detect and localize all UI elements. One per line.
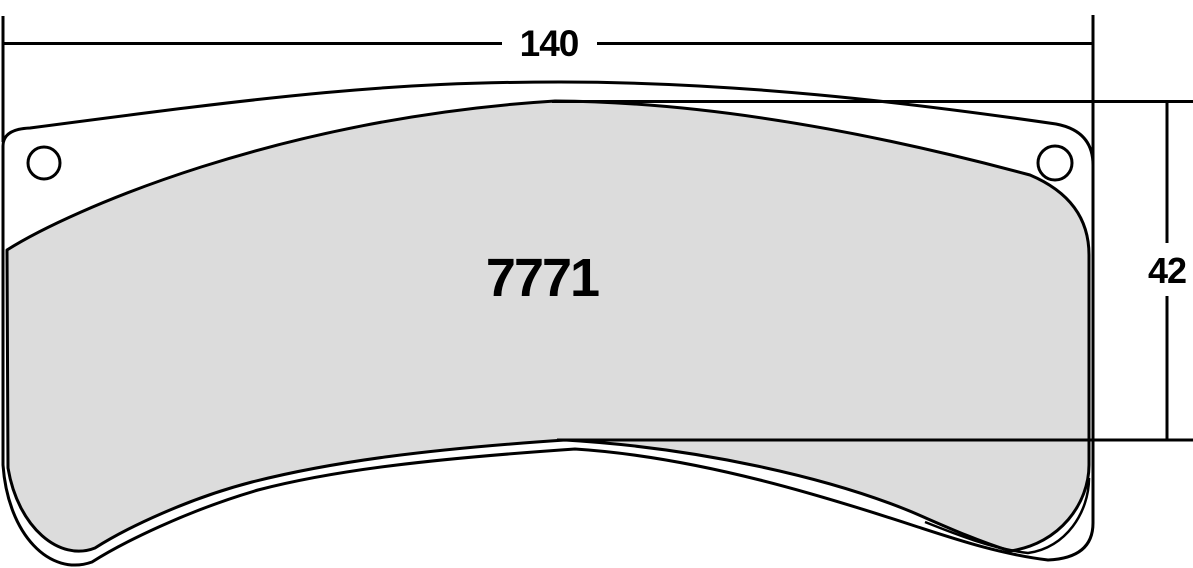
part-number-label: 7771 xyxy=(486,248,599,308)
mounting-hole-right xyxy=(1038,146,1072,180)
mounting-hole-left xyxy=(28,147,60,179)
width-dimension-label: 140 xyxy=(520,23,579,64)
brake-pad-technical-drawing: 140 42 7771 xyxy=(0,0,1193,568)
height-dimension-label: 42 xyxy=(1148,250,1186,291)
drawing-canvas: 140 42 7771 xyxy=(0,0,1193,568)
